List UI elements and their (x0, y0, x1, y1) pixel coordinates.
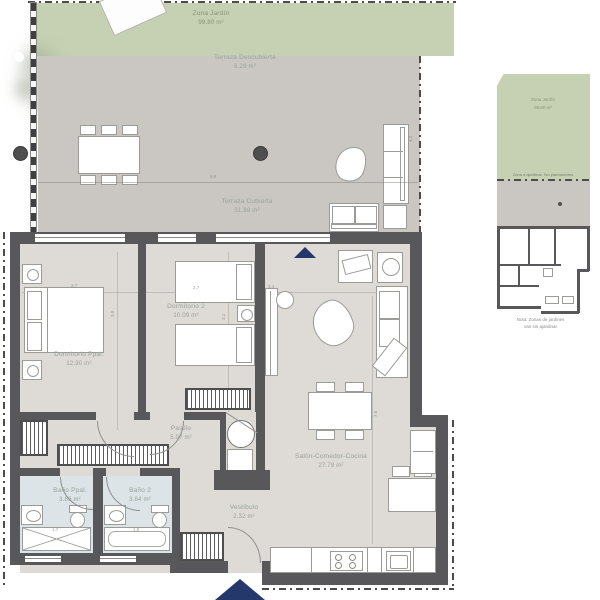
single-bed (175, 261, 255, 303)
key-plan-wall (499, 285, 539, 287)
dim-dorm2-depth: 3.1 (221, 314, 226, 320)
wall-segment (255, 244, 265, 412)
bar-stool (392, 466, 410, 477)
key-plan-column (558, 202, 562, 206)
window (25, 556, 61, 562)
wall-segment (256, 412, 265, 470)
dim-terrace-width: 8.9 (210, 174, 216, 179)
key-plan: Zona Jardín 99.80 m² Zona a ajardinar. S… (488, 68, 598, 333)
dining-table (308, 392, 372, 430)
laundry-appliance (227, 449, 253, 471)
plot-boundary-left (3, 232, 5, 585)
key-plan-wall (499, 264, 561, 266)
room-label-dormitorio-ppal: Dormitorio Ppal. 12.90 m² (24, 350, 134, 369)
dim-salon-width: 3.4 (268, 284, 274, 289)
key-plan-wall (587, 226, 590, 271)
key-plan-wall (518, 264, 520, 286)
wall-segment (93, 468, 103, 565)
key-plan-wall (497, 306, 541, 309)
terrace-dimension-line (38, 182, 418, 183)
double-bed (24, 287, 104, 353)
key-plan-garden-label: Zona Jardín 99.80 m² (493, 96, 593, 111)
sliding-door (216, 234, 330, 242)
dining-chair (345, 430, 364, 440)
key-plan-furniture (543, 268, 553, 277)
wall-segment (172, 468, 180, 565)
cooktop (330, 551, 363, 571)
terrace-chair (101, 125, 117, 135)
dining-chair (316, 430, 335, 440)
wall-segment (262, 573, 448, 585)
floor-lamp (276, 291, 294, 309)
single-bed (175, 324, 255, 366)
plot-boundary-top (28, 1, 456, 3)
room-label-vestibulo: Vestíbulo 2.32 m² (189, 503, 299, 522)
dimension-line (372, 296, 373, 544)
sofa (376, 286, 408, 378)
wall-segment (10, 232, 20, 565)
plot-boundary-right-lower (452, 420, 454, 588)
room-label-pasillo: Pasillo 5.07 m² (126, 424, 236, 443)
dim-terrace-depth: 4.2 (408, 136, 413, 142)
dim-dorm-ppal-depth: 3.0 (110, 311, 115, 317)
key-plan-note: Nota: Zonas de jardines van sin ajardina… (488, 316, 593, 330)
main-entrance-arrow-icon (215, 579, 265, 600)
toilet (150, 505, 170, 527)
plot-boundary-bottom (262, 588, 454, 590)
dimension-line (117, 252, 118, 430)
terrace-sofa (329, 203, 379, 232)
terrace-chair (80, 175, 96, 185)
fridge (410, 430, 436, 474)
key-plan-wall (528, 228, 530, 264)
terrace-chair (122, 175, 138, 185)
key-plan-wall (554, 228, 556, 264)
armchair (338, 250, 373, 283)
window (158, 234, 196, 242)
kitchen-sink (386, 551, 411, 571)
key-plan-strip-label: Zona a ajardinar. Sin plantaciones (491, 172, 595, 177)
window (100, 556, 136, 562)
key-plan-garden (497, 74, 590, 180)
wall-segment (410, 232, 422, 422)
kitchen-island (388, 478, 436, 512)
wardrobe (185, 388, 251, 410)
terrace-chair (122, 125, 138, 135)
side-table (377, 252, 403, 283)
terrace-chair (80, 125, 96, 135)
wall-segment (214, 470, 270, 490)
terrace-boundary-right (419, 56, 421, 232)
terrace-table (78, 136, 140, 174)
terraza-descubierta-label: Terraza Descubierta 6.29 m² (190, 53, 300, 72)
key-plan-terrace (497, 180, 590, 226)
key-plan-wall (577, 269, 580, 313)
floor-plan-canvas: Zona Jardín 99.80 m² Terraza Descubierta… (0, 0, 600, 600)
dim-salon-depth: 7.6 (373, 411, 378, 417)
column (13, 146, 28, 161)
key-plan-furniture (545, 296, 559, 304)
nightstand (22, 264, 42, 284)
wall-segment (134, 412, 150, 420)
bathroom-sink (104, 505, 126, 525)
wall-segment (436, 415, 448, 585)
wardrobe (20, 420, 48, 456)
key-plan-wall (497, 226, 590, 229)
dim-bano-ppal-width: 1.7 (52, 527, 58, 532)
dim-dorm2-width: 2.7 (193, 285, 199, 290)
garden-label: Zona Jardín 99.80 m² (156, 9, 266, 28)
key-plan-wall (541, 311, 579, 314)
room-label-bano-2: Baño 2 3.84 m² (85, 486, 195, 505)
column (253, 146, 268, 161)
wall-segment (20, 412, 96, 420)
entry-closet (180, 532, 224, 561)
wall-segment (138, 244, 146, 412)
key-plan-wall (497, 226, 500, 308)
garden-area-value: 99.80 m² (156, 19, 266, 28)
window (35, 234, 125, 242)
bathroom-sink (21, 505, 43, 525)
wall-segment (262, 561, 270, 575)
dim-bano2-width: 1.8 (133, 527, 139, 532)
garden-name: Zona Jardín (156, 9, 266, 19)
terraza-cubierta-label: Terraza Cubierta 31.88 m² (192, 197, 302, 216)
dining-chair (316, 382, 335, 392)
garden-fence (30, 2, 37, 234)
key-plan-furniture (562, 296, 574, 304)
terrace-entry-arrow-icon (294, 247, 316, 258)
terrace-chair (101, 175, 117, 185)
key-plan-terrace-boundary (497, 179, 590, 181)
terrace-side-table (383, 205, 407, 229)
wall-segment (20, 468, 60, 476)
terrace-shelf (383, 124, 409, 204)
room-label-salon: Salón-Comedor-Cocina 27.78 m² (276, 452, 386, 471)
tree-icon (14, 52, 24, 62)
dim-dorm-ppal-width: 2.7 (71, 283, 77, 288)
dining-chair (345, 382, 364, 392)
